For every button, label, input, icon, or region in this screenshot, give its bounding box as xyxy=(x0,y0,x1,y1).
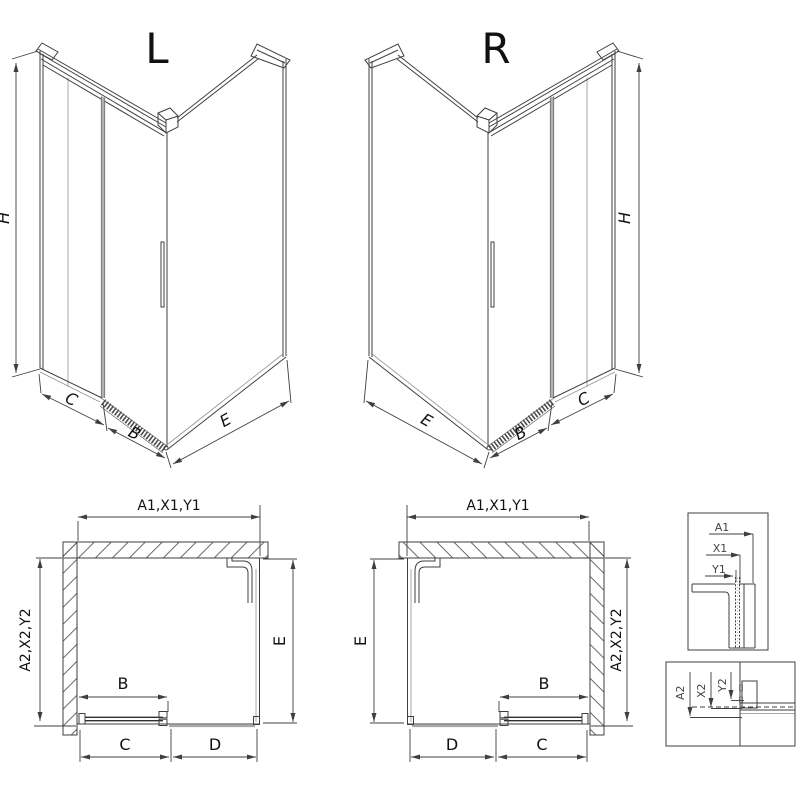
detail-bottom-profile: A2 X2 Y2 xyxy=(666,662,795,746)
plan-left-dim-side: A2,X2,Y2 xyxy=(18,608,34,671)
iso-view-left: L H C B E xyxy=(0,24,291,468)
plan-structure-left xyxy=(34,505,297,762)
detail-dim-y1: Y1 xyxy=(711,563,726,576)
detail-bottom-frame xyxy=(666,662,795,746)
iso-view-right: R H E B C xyxy=(364,24,643,468)
detail-dim-a2: A2 xyxy=(674,685,687,700)
detail-dim-x2: X2 xyxy=(695,683,708,698)
dim-label-c-right: C xyxy=(574,388,593,410)
plan-left-dim-top: A1,X1,Y1 xyxy=(137,498,200,514)
plan-right-dim-e: E xyxy=(351,636,370,646)
plan-right-dim-d: D xyxy=(446,735,458,754)
dim-label-h-right: H xyxy=(615,212,634,224)
iso-structure-right xyxy=(364,43,643,468)
variant-label-l: L xyxy=(145,24,169,73)
dim-label-h-left: H xyxy=(0,212,13,224)
detail-dim-y2: Y2 xyxy=(716,678,729,693)
plan-view-right: A1,X1,Y1 A2,X2,Y2 E B D C xyxy=(351,498,633,762)
plan-left-dim-d: D xyxy=(209,735,221,754)
wall-profile-section xyxy=(692,577,755,648)
variant-label-r: R xyxy=(481,24,510,73)
dim-label-e-right: E xyxy=(418,409,437,431)
iso-structure-left xyxy=(12,43,291,468)
detail-dim-a1: A1 xyxy=(715,521,730,534)
shower-enclosure-technical-drawing: L H C B E R H E B C A1,X1,Y1 A2,X2,Y2 E … xyxy=(0,0,800,800)
detail-dim-x1: X1 xyxy=(713,542,728,555)
plan-view-left: A1,X1,Y1 A2,X2,Y2 E B C D xyxy=(18,498,297,762)
plan-structure-right xyxy=(370,505,633,762)
dim-label-e-left: E xyxy=(216,409,235,431)
plan-right-dim-side: A2,X2,Y2 xyxy=(609,608,625,671)
plan-left-dim-e: E xyxy=(270,636,289,646)
dim-label-c-left: C xyxy=(62,388,81,410)
plan-left-dim-c: C xyxy=(119,735,130,754)
plan-left-dim-b: B xyxy=(118,674,129,693)
plan-right-dim-c: C xyxy=(536,735,547,754)
plan-right-dim-top: A1,X1,Y1 xyxy=(466,498,529,514)
plan-right-dim-b: B xyxy=(539,674,550,693)
detail-top-profile: A1 X1 Y1 xyxy=(688,513,768,650)
